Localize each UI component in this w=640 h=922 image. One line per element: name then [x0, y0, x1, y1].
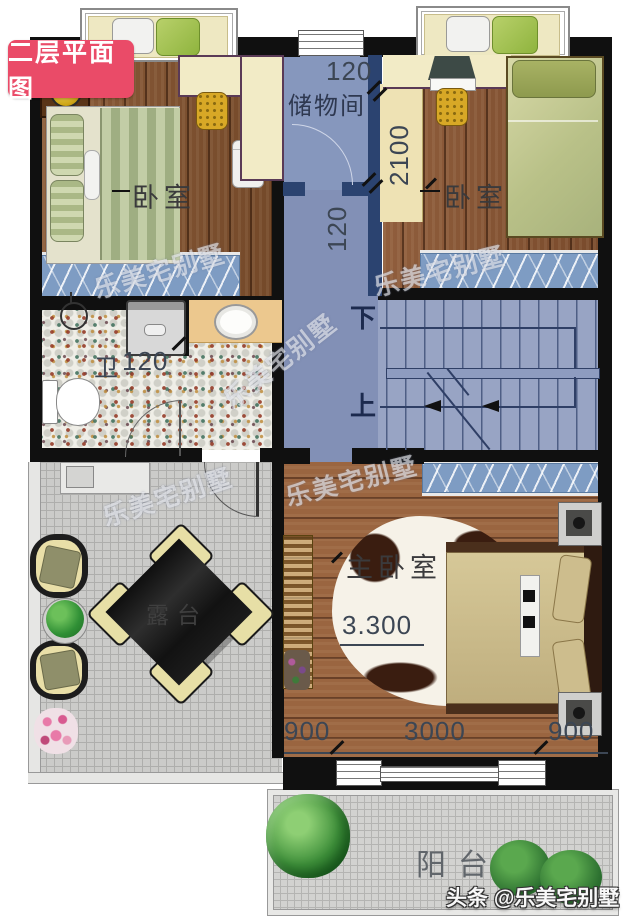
wall-top-3	[360, 37, 424, 57]
bay-left-pillow-green	[156, 18, 200, 56]
stairs-route-down	[380, 327, 576, 329]
stairs-arrow-icon	[424, 400, 441, 412]
title-badge: 二层平面图	[8, 40, 134, 98]
stairs-route-down-turn	[574, 327, 576, 369]
master-sliding-door	[380, 766, 502, 782]
shower-head-icon	[60, 302, 88, 330]
bedroom-right-leader	[420, 190, 440, 192]
bed-right-pillow	[512, 60, 596, 98]
dim-master-left: 900	[284, 716, 330, 747]
floor-plan-canvas: 下 上	[0, 0, 640, 922]
stairs-down-label: 下	[350, 298, 376, 335]
wall-top-2	[228, 37, 300, 57]
computer-monitor-icon	[428, 56, 476, 80]
master-bedroom-label: 主卧室	[346, 546, 442, 585]
speaker-top-cone-icon	[573, 517, 585, 529]
bedroom-left-leader	[112, 190, 130, 192]
terrace-label: 露台	[146, 596, 216, 626]
terrace-door-leaf	[256, 462, 259, 516]
stairs-arrow-icon-2	[482, 400, 499, 412]
storage-window	[298, 30, 364, 56]
wardrobe-master-bedroom	[422, 460, 600, 496]
runner-square-1	[523, 590, 535, 602]
dim-bathroom: 120	[122, 346, 168, 377]
dim-master-center: 3000	[404, 716, 466, 747]
dim-master-right: 900	[548, 716, 594, 747]
master-elevation: 3.300	[342, 610, 412, 641]
desk-left-side	[240, 55, 284, 181]
bedroom-left-label: 卧室	[132, 176, 196, 215]
elevation-underline	[340, 644, 424, 646]
storage-label: 储物间	[288, 86, 366, 121]
master-window-right	[498, 760, 546, 786]
chair-right-bedroom	[436, 88, 468, 126]
stairs-route-up	[380, 406, 576, 408]
bathroom-door-leaf	[179, 400, 181, 456]
stairs-route-up-turn	[574, 377, 576, 407]
dim-storage-top: 120	[326, 56, 372, 87]
dim-closet-right: 2100	[384, 90, 415, 186]
bed-left-bolster	[84, 150, 100, 200]
balcony-label: 阳台	[416, 840, 500, 884]
shower-stem	[70, 292, 72, 304]
credit-watermark: 头条 @乐美宅别墅	[446, 882, 619, 912]
flowers-master	[284, 650, 310, 690]
toilet-icon	[56, 378, 100, 426]
bed-left-pillow-1	[50, 114, 84, 176]
bed-right-fold	[508, 120, 598, 122]
stairs-up-label: 上	[350, 386, 376, 423]
bedroom-right-label: 卧室	[444, 176, 508, 215]
chair-left-bedroom	[196, 92, 228, 130]
balcony-tree-icon	[266, 794, 350, 878]
terrace-railing-bottom	[28, 772, 284, 784]
stairs-handrail	[386, 368, 600, 379]
bed-left-pillow-2	[50, 180, 84, 242]
washing-machine-door	[144, 324, 166, 336]
sink-icon	[214, 304, 258, 340]
bay-right-pillow-green	[492, 16, 538, 54]
dim-hall-wall: 120	[322, 190, 353, 252]
flowers-terrace	[34, 708, 78, 754]
runner-square-2	[523, 616, 535, 628]
terrace-counter-sink	[66, 466, 94, 488]
armchair-2-pillow	[39, 649, 81, 691]
bay-right-pillow-white	[446, 16, 490, 52]
armchair-1-pillow	[38, 545, 81, 590]
potted-plant-icon	[46, 600, 84, 638]
master-window-left	[336, 760, 382, 786]
bathroom-label: 卫	[94, 348, 118, 383]
